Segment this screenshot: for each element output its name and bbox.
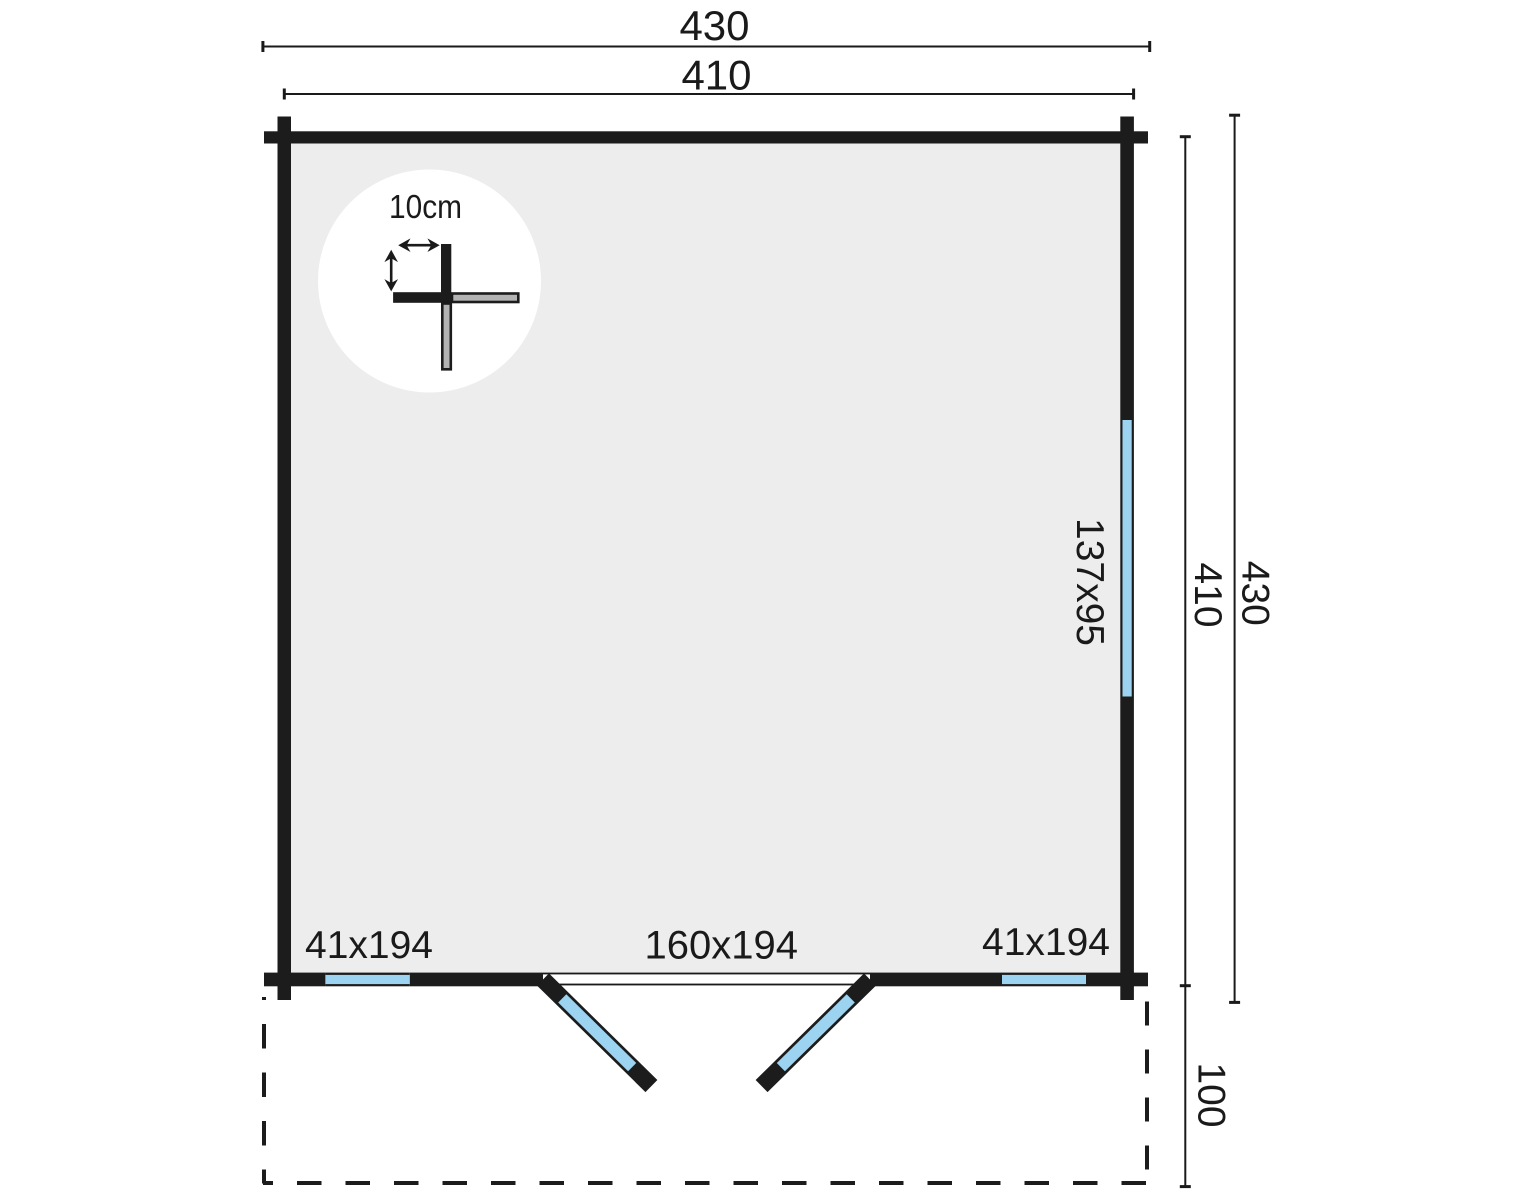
svg-text:41x194: 41x194 [982,921,1110,964]
svg-text:10cm: 10cm [389,188,462,225]
svg-text:430: 430 [679,2,749,49]
svg-text:137x95: 137x95 [1068,518,1111,646]
svg-text:410: 410 [1186,562,1229,627]
svg-text:410: 410 [681,52,751,99]
svg-text:430: 430 [1234,561,1277,626]
svg-text:41x194: 41x194 [305,924,433,967]
svg-text:100: 100 [1190,1062,1233,1127]
svg-text:160x194: 160x194 [645,924,798,968]
